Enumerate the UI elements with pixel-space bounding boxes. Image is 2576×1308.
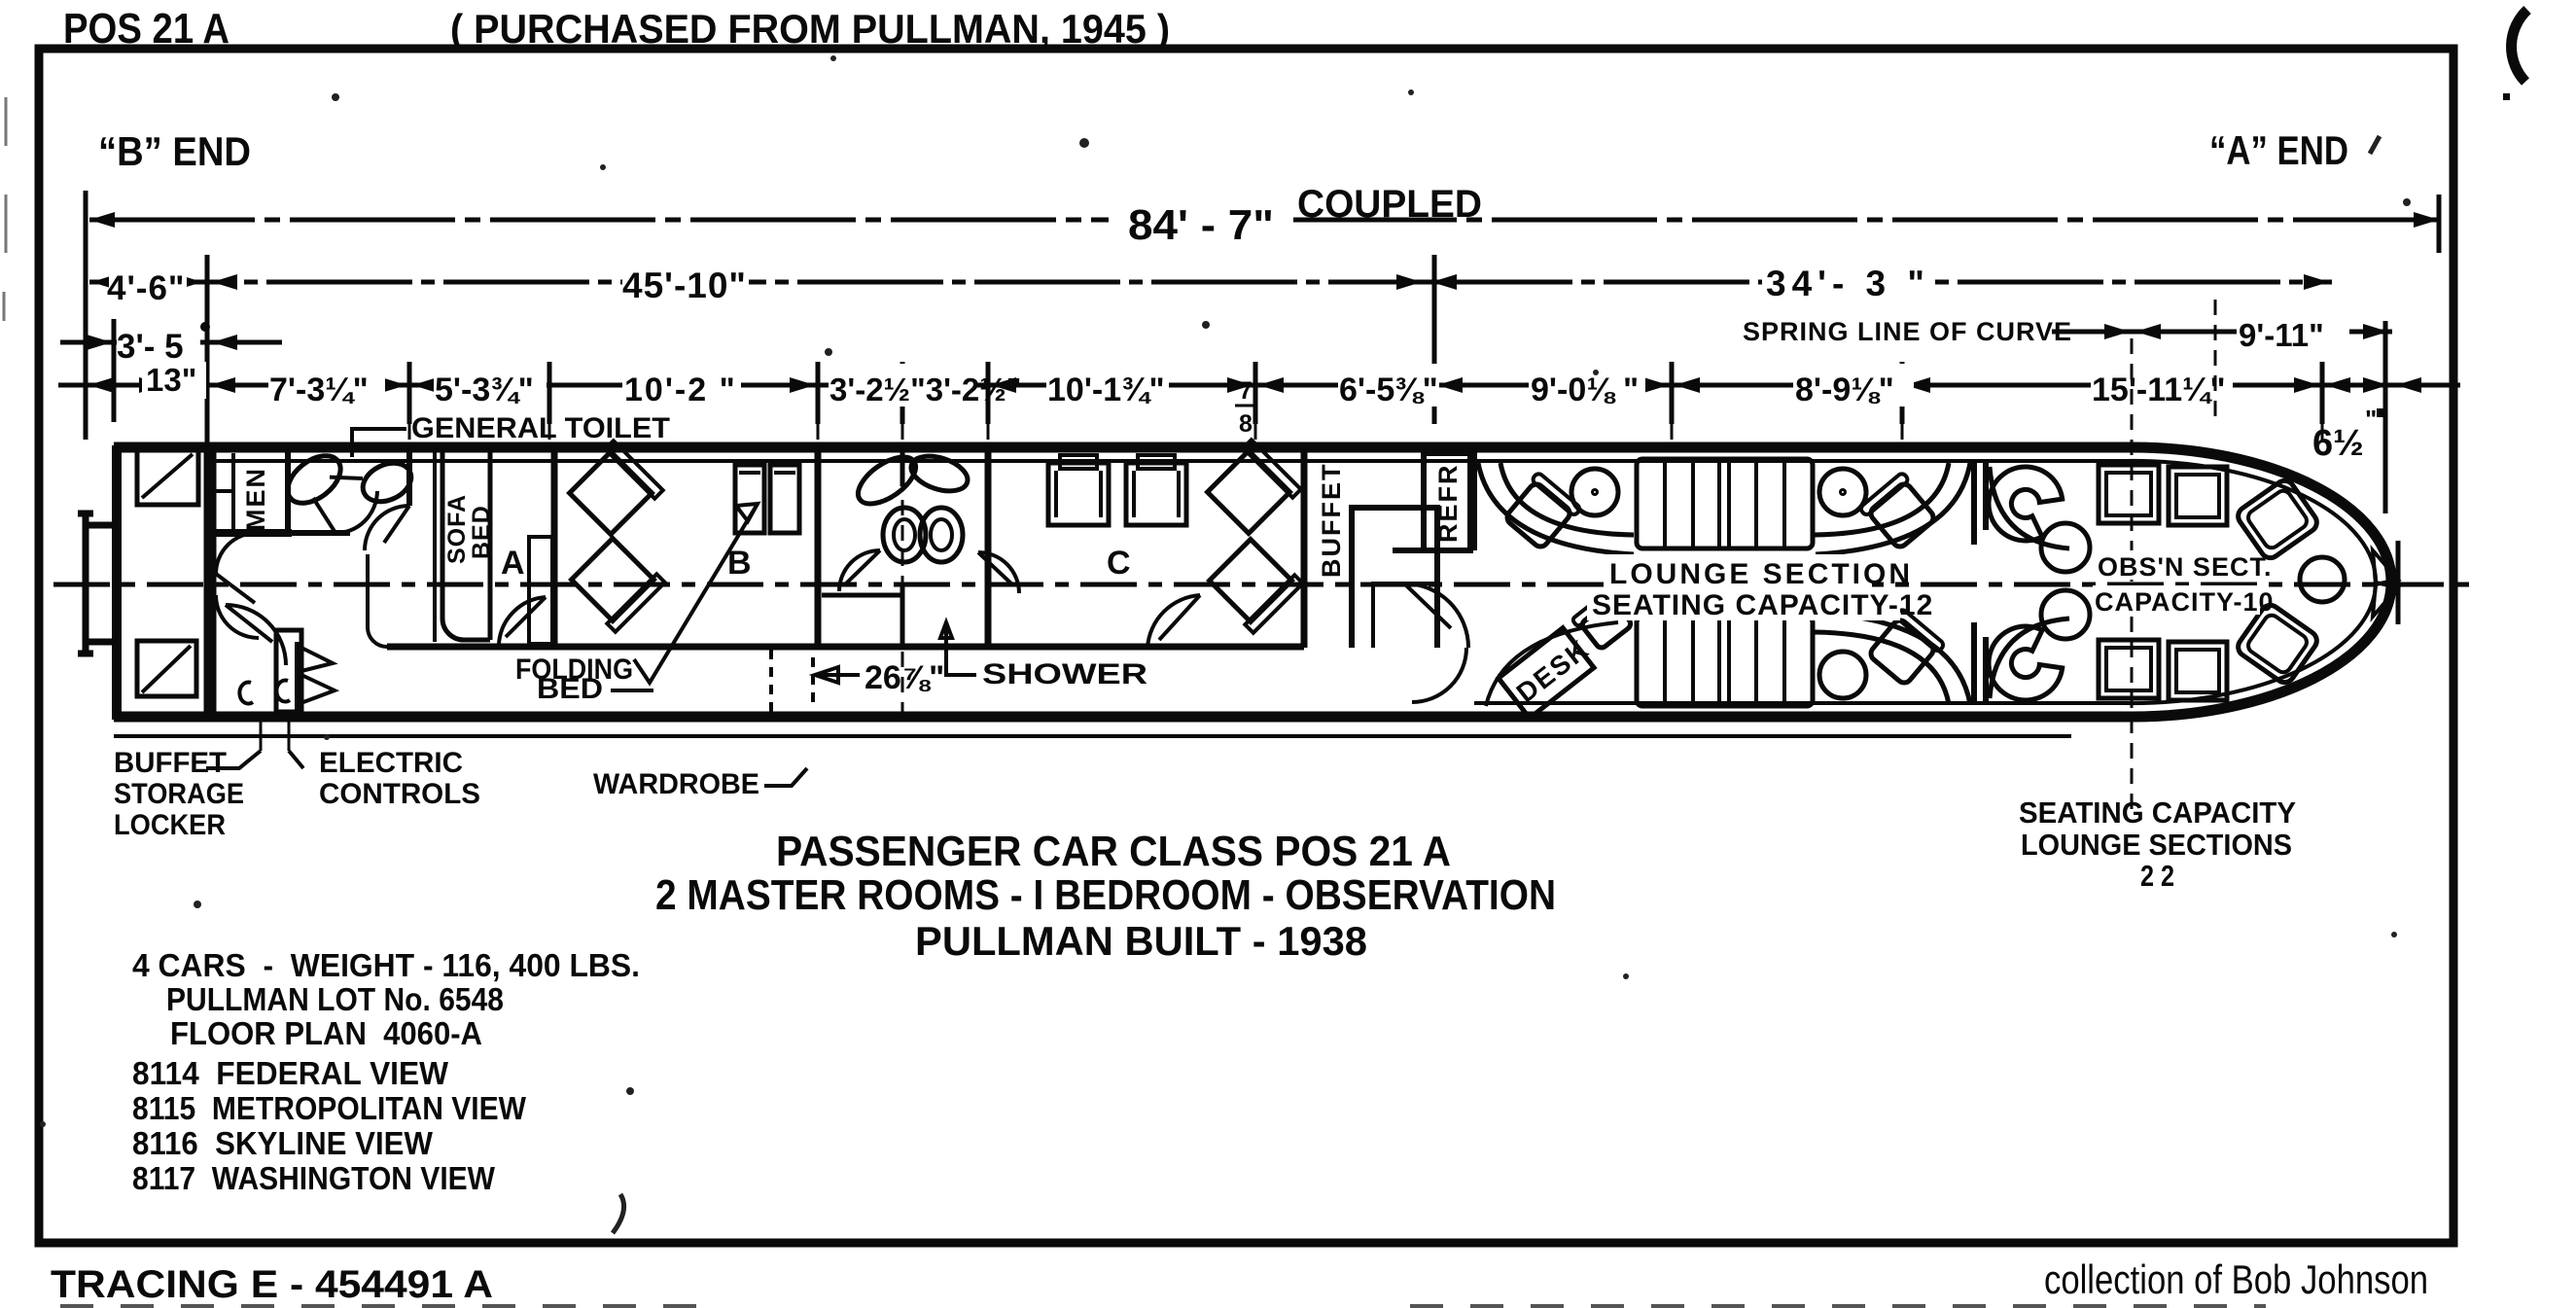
svg-text:2 2: 2 2 [2140, 859, 2174, 893]
svg-text:BED: BED [468, 505, 495, 559]
svg-text:7'-3¼": 7'-3¼" [269, 371, 369, 408]
svg-text:“B” END: “B” END [98, 128, 251, 174]
svg-text:PULLMAN LOT No. 6548: PULLMAN LOT No. 6548 [166, 981, 504, 1017]
svg-text:COUPLED: COUPLED [1297, 183, 1482, 226]
svg-text:LOCKER: LOCKER [114, 809, 226, 841]
svg-text:6'-5⅜": 6'-5⅜" [1339, 371, 1438, 408]
svg-text:“A” END: “A” END [2209, 127, 2348, 173]
svg-text:MEN: MEN [241, 467, 270, 531]
svg-text:84' - 7": 84' - 7" [1128, 201, 1274, 249]
svg-text:A: A [501, 545, 525, 582]
svg-text:CONTROLS: CONTROLS [319, 778, 480, 810]
svg-text:8114 FEDERAL VIEW: 8114 FEDERAL VIEW [132, 1055, 449, 1091]
svg-text:SEATING CAPACITY-12: SEATING CAPACITY-12 [1592, 589, 1933, 621]
svg-text:FLOOR PLAN 4060-A: FLOOR PLAN 4060-A [170, 1015, 482, 1051]
svg-text:POS 21 A: POS 21 A [63, 5, 229, 53]
svg-text:collection of Bob Johnson: collection of Bob Johnson [2044, 1256, 2428, 1302]
svg-text:8117 WASHINGTON VIEW: 8117 WASHINGTON VIEW [132, 1160, 496, 1196]
svg-text:CAPACITY-10: CAPACITY-10 [2095, 587, 2275, 617]
svg-text:8116 SKYLINE VIEW: 8116 SKYLINE VIEW [132, 1125, 434, 1161]
svg-text:26⅞": 26⅞" [865, 659, 944, 696]
svg-text:SEATING CAPACITY: SEATING CAPACITY [2019, 795, 2296, 830]
svg-text:ELECTRIC: ELECTRIC [319, 747, 463, 779]
svg-text:PULLMAN BUILT - 1938: PULLMAN BUILT - 1938 [915, 918, 1367, 964]
svg-text:": " [2365, 405, 2377, 434]
svg-text:4'-6": 4'-6" [107, 269, 186, 307]
svg-text:9'-11": 9'-11" [2239, 317, 2324, 353]
svg-text:9'-0⅛ ": 9'-0⅛ " [1531, 371, 1639, 408]
svg-text:10'-2 ": 10'-2 " [624, 371, 737, 408]
svg-text:OBS'N SECT.: OBS'N SECT. [2098, 552, 2272, 582]
svg-text:REFR: REFR [1433, 464, 1463, 544]
svg-text:BUFFET: BUFFET [1317, 463, 1346, 578]
svg-text:STORAGE: STORAGE [114, 778, 244, 810]
svg-text:LOUNGE SECTION: LOUNGE SECTION [1609, 558, 1913, 590]
svg-text:PASSENGER CAR CLASS POS 21 A: PASSENGER CAR CLASS POS 21 A [776, 828, 1451, 875]
svg-text:C: C [1107, 545, 1131, 582]
svg-text:SOFA: SOFA [443, 494, 471, 564]
svg-text:TRACING E - 454491 A: TRACING E - 454491 A [51, 1263, 493, 1306]
svg-text:LOUNGE SECTIONS: LOUNGE SECTIONS [2021, 828, 2292, 862]
svg-text:SPRING LINE OF CURVE: SPRING LINE OF CURVE [1743, 317, 2072, 346]
svg-text:10'-1¾": 10'-1¾" [1047, 371, 1165, 408]
svg-text:GENERAL TOILET: GENERAL TOILET [411, 412, 670, 444]
svg-text:8115 METROPOLITAN VIEW: 8115 METROPOLITAN VIEW [132, 1090, 527, 1126]
svg-text:BED: BED [537, 673, 603, 705]
svg-text:4 CARS - WEIGHT - 116, 400 L: 4 CARS - WEIGHT - 116, 400 LBS. [132, 947, 640, 983]
svg-text:8'-9⅛": 8'-9⅛" [1795, 371, 1894, 408]
svg-text:13": 13" [146, 362, 196, 398]
svg-text:( PURCHASED FROM PULLMAN, 1945: ( PURCHASED FROM PULLMAN, 1945 ) [450, 6, 1170, 52]
svg-text:5'-3¾": 5'-3¾" [435, 371, 534, 408]
svg-text:WARDROBE: WARDROBE [593, 768, 759, 800]
svg-text:6½: 6½ [2312, 423, 2364, 464]
svg-text:15'-11¼": 15'-11¼" [2092, 371, 2226, 408]
svg-text:3'-2½"3'-2½": 3'-2½"3'-2½" [829, 371, 1021, 407]
svg-text:BUFFET: BUFFET [114, 747, 227, 779]
svg-text:SHOWER: SHOWER [982, 658, 1147, 690]
svg-text:34'- 3 ": 34'- 3 " [1766, 264, 1930, 303]
svg-text:3'- 5: 3'- 5 [117, 328, 184, 366]
svg-text:45'-10": 45'-10" [622, 265, 747, 305]
svg-text:7: 7 [1239, 377, 1253, 405]
svg-text:2 MASTER ROOMS - I BEDROOM - O: 2 MASTER ROOMS - I BEDROOM - OBSERVATION [655, 871, 1556, 919]
svg-text:8: 8 [1239, 410, 1253, 438]
